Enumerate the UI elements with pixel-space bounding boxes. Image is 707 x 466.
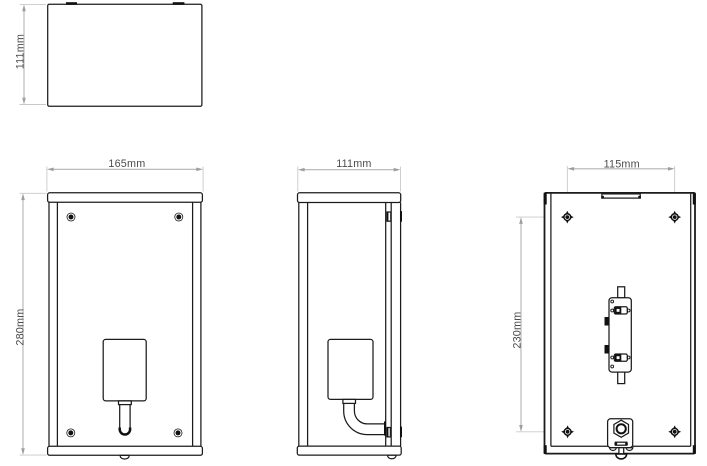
- svg-text:165mm: 165mm: [108, 158, 145, 170]
- svg-text:111mm: 111mm: [336, 158, 371, 170]
- svg-text:111mm: 111mm: [14, 34, 26, 69]
- svg-text:230mm: 230mm: [511, 312, 523, 349]
- svg-text:115mm: 115mm: [604, 158, 640, 170]
- svg-text:280mm: 280mm: [14, 309, 26, 346]
